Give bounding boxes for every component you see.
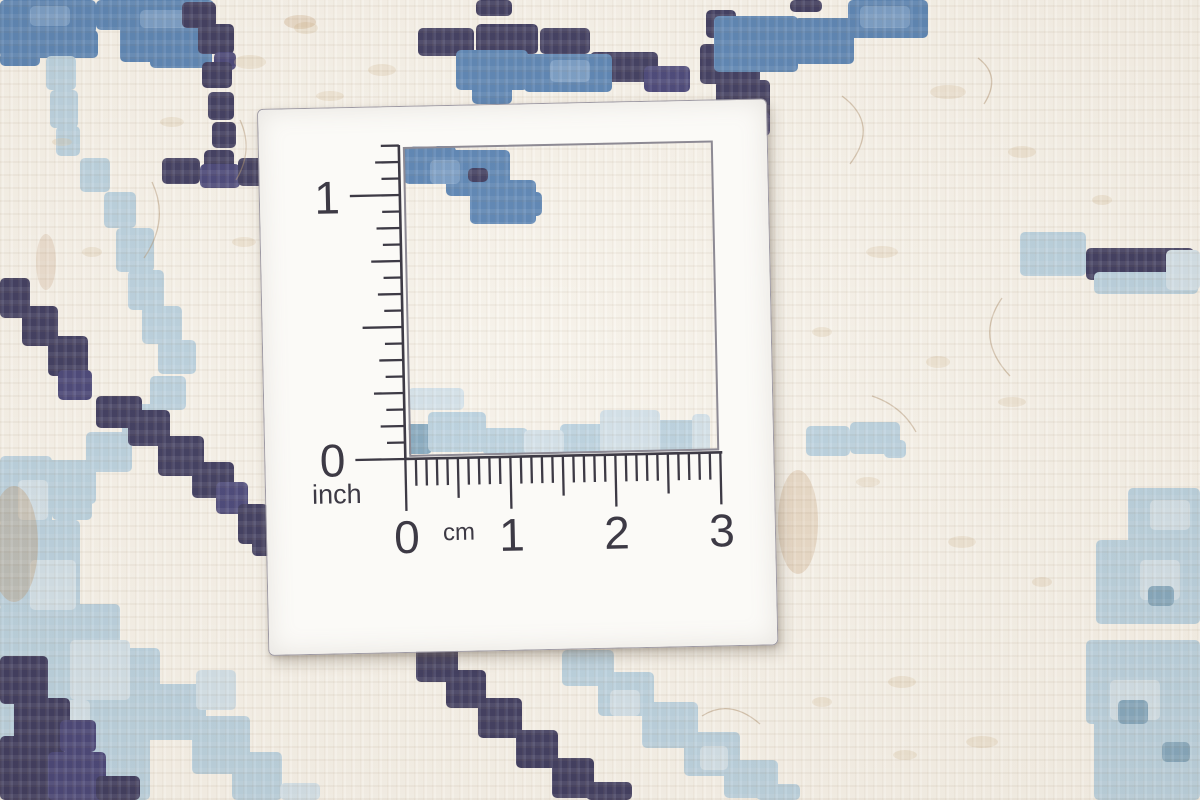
cm-unit-label: cm (443, 521, 475, 546)
cm-scale-label-2: 2 (589, 509, 644, 556)
inch-scale-line (399, 145, 406, 459)
inch-ticks (349, 146, 406, 460)
inch-unit-label: inch (312, 481, 362, 509)
inch-scale-label-0: 0 (291, 437, 346, 484)
cm-scale-label-0: 0 (380, 513, 435, 560)
cm-scale-label-3: 3 (694, 507, 749, 554)
cm-scale-label-1: 1 (484, 511, 539, 558)
inch-scale-label-1: 1 (285, 174, 340, 221)
cm-ticks (405, 452, 721, 511)
rug-photo: 1 0 inch 0 cm 1 2 3 (0, 0, 1200, 800)
measuring-card: 1 0 inch 0 cm 1 2 3 (257, 98, 778, 656)
